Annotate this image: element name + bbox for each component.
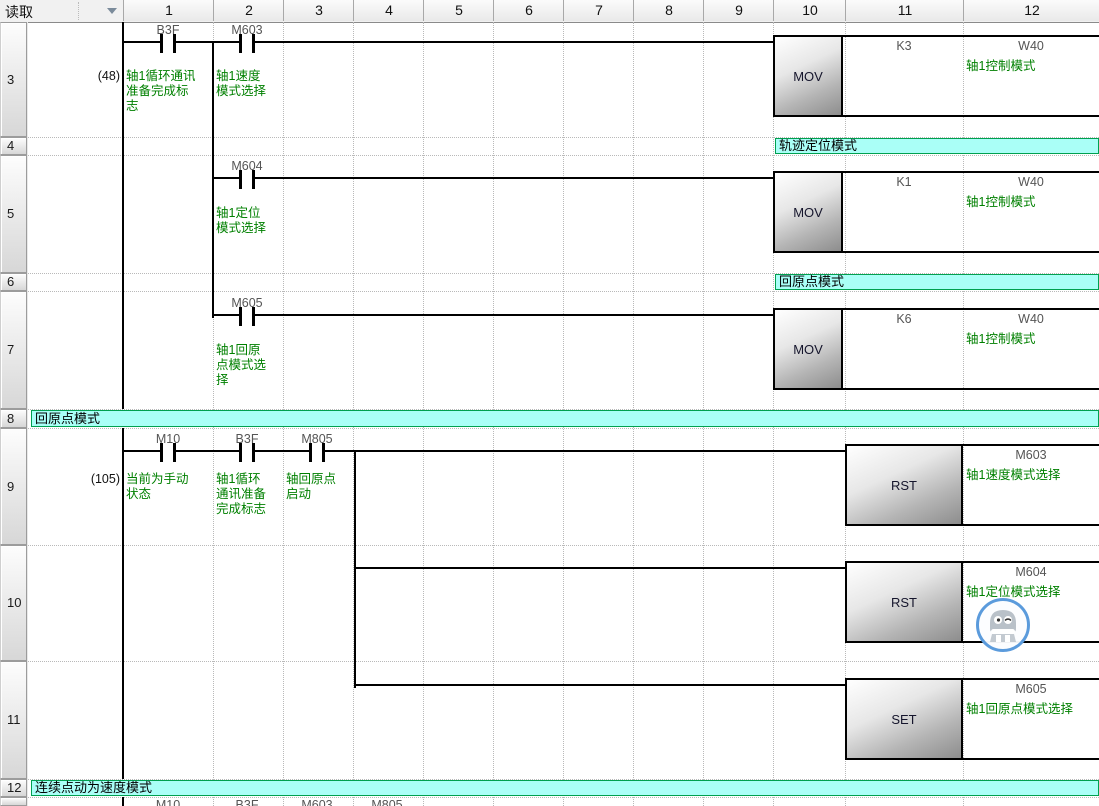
operand-comment: 轴1控制模式 <box>966 55 1035 74</box>
contact-bar <box>239 34 242 53</box>
operand-label: M603 <box>963 448 1099 462</box>
header-divider <box>78 2 79 20</box>
operand-label: W40 <box>963 175 1099 189</box>
instruction-mnemonic: SET <box>891 712 916 727</box>
instruction-box-mov[interactable]: MOV <box>773 171 843 253</box>
instruction-mnemonic: MOV <box>793 69 823 84</box>
contact-bar <box>252 170 255 189</box>
instruction-mnemonic: RST <box>891 478 917 493</box>
instruction-mnemonic: RST <box>891 595 917 610</box>
operand-comment: 轴1回原点模式选择 <box>966 698 1073 717</box>
rung-line <box>212 314 775 316</box>
column-header-4: 4 <box>353 0 424 21</box>
column-header-10: 10 <box>773 0 846 21</box>
contact-bar <box>160 443 163 462</box>
device-comment: 轴1循环 通讯准备 完成标志 <box>216 472 282 517</box>
contact-bar <box>322 443 325 462</box>
contact-bar <box>252 34 255 53</box>
statement-bar[interactable]: 轨迹定位模式 <box>775 138 1099 154</box>
instruction-rail <box>961 561 1099 563</box>
device-label: B3F <box>133 23 203 37</box>
instruction-box-mov[interactable]: MOV <box>773 308 843 390</box>
operand-label: W40 <box>963 312 1099 326</box>
operand-label: K6 <box>845 312 963 326</box>
contact-gap <box>163 40 173 46</box>
contact-bar <box>173 34 176 53</box>
contact-gap <box>242 449 252 455</box>
statement-text: 连续点动为速度模式 <box>35 781 152 795</box>
contact-bar <box>160 34 163 53</box>
grid-line <box>28 155 1099 156</box>
device-label: M605 <box>212 296 282 310</box>
rung-line <box>354 684 847 686</box>
contact-bar <box>239 307 242 326</box>
device-label: M603 <box>212 23 282 37</box>
device-label: M805 <box>282 432 352 446</box>
operand-comment: 轴1速度模式选择 <box>966 464 1060 483</box>
instruction-rail <box>841 388 1099 390</box>
device-label: B3F <box>212 798 282 806</box>
statement-bar[interactable]: 回原点模式 <box>775 274 1099 290</box>
contact-bar <box>239 170 242 189</box>
operand-comment: 轴1定位模式选择 <box>966 581 1060 600</box>
row-header-4[interactable]: 4 <box>0 137 27 155</box>
column-header-2: 2 <box>213 0 284 21</box>
contact-m604[interactable]: M604 <box>212 159 282 193</box>
column-header-5: 5 <box>423 0 494 21</box>
column-header-8: 8 <box>633 0 704 21</box>
contact-m605[interactable]: M605 <box>212 296 282 330</box>
contact-bar <box>173 443 176 462</box>
grid-line <box>28 661 1099 662</box>
contact-gap <box>242 176 252 182</box>
row-header-6[interactable]: 6 <box>0 273 27 291</box>
row-header-10[interactable]: 10 <box>0 545 27 661</box>
column-header-11: 11 <box>845 0 964 21</box>
instruction-rail <box>841 35 1099 37</box>
robot-face-icon <box>983 605 1023 645</box>
column-header-6: 6 <box>493 0 564 21</box>
contact-m603[interactable]: M603 <box>212 23 282 57</box>
statement-text: 轨迹定位模式 <box>779 139 857 153</box>
device-label: M603 <box>282 798 352 806</box>
device-label: M805 <box>352 798 422 806</box>
device-label: B3F <box>212 432 282 446</box>
row-number: 5 <box>7 206 14 221</box>
row-number: 8 <box>7 411 14 426</box>
row-number: 6 <box>7 274 14 289</box>
operand-label: K3 <box>845 39 963 53</box>
operand-comment: 轴1控制模式 <box>966 191 1035 210</box>
instruction-box-set[interactable]: SET <box>845 678 963 760</box>
row-number: 4 <box>7 138 14 153</box>
device-comment: 当前为手动 状态 <box>126 472 212 502</box>
row-header-11[interactable]: 11 <box>0 661 27 779</box>
rung-line <box>354 567 847 569</box>
contact-m10[interactable]: M10 <box>133 432 203 466</box>
instruction-rail <box>961 444 1099 446</box>
row-header-12[interactable]: 12 <box>0 779 27 797</box>
contact-b3f[interactable]: B3F <box>212 432 282 466</box>
row-number: 11 <box>7 712 21 727</box>
column-header-7: 7 <box>563 0 634 21</box>
instruction-mnemonic: MOV <box>793 205 823 220</box>
instruction-box-mov[interactable]: MOV <box>773 35 843 117</box>
grid-line <box>28 428 1099 429</box>
operand-label: M604 <box>963 565 1099 579</box>
device-label: M10 <box>133 432 203 446</box>
device-label: M10 <box>133 798 203 806</box>
device-comment: 轴回原点 启动 <box>286 472 352 502</box>
device-comment: 轴1回原 点模式选 择 <box>216 343 282 388</box>
contact-gap <box>312 449 322 455</box>
column-header-3: 3 <box>283 0 354 21</box>
step-number: (105) <box>58 472 120 486</box>
grid-line <box>28 545 1099 546</box>
row-header-7[interactable]: 7 <box>0 291 27 409</box>
device-comment: 轴1速度 模式选择 <box>216 69 282 99</box>
grid-line <box>28 291 1099 292</box>
read-mode-label: 读取 <box>5 2 33 22</box>
contact-bar <box>252 443 255 462</box>
instruction-rail <box>841 115 1099 117</box>
statement-text: 回原点模式 <box>35 412 100 426</box>
row-number: 3 <box>7 72 14 87</box>
contact-bar <box>239 443 242 462</box>
statement-bar[interactable]: 连续点动为速度模式 <box>31 780 1099 796</box>
rung-line <box>212 177 775 179</box>
instruction-rail <box>961 524 1099 526</box>
contact-b3f[interactable]: B3F <box>133 23 203 57</box>
contact-gap <box>242 313 252 319</box>
column-header-12: 12 <box>963 0 1099 21</box>
read-mode-combo[interactable]: 读取 <box>0 0 123 21</box>
statement-text: 回原点模式 <box>779 275 844 289</box>
instruction-rail <box>961 678 1099 680</box>
operand-label: K1 <box>845 175 963 189</box>
chevron-down-icon[interactable] <box>107 8 117 14</box>
left-rail <box>122 22 124 409</box>
instruction-rail <box>841 308 1099 310</box>
column-header-9: 9 <box>703 0 774 21</box>
row-header-5[interactable]: 5 <box>0 155 27 273</box>
device-label: M604 <box>212 159 282 173</box>
column-header-1: 1 <box>123 0 214 21</box>
contact-gap <box>163 449 173 455</box>
contact-m805[interactable]: M805 <box>282 432 352 466</box>
row-header-9[interactable]: 9 <box>0 428 27 545</box>
instruction-rail <box>841 171 1099 173</box>
row-header-3[interactable]: 3 <box>0 22 27 137</box>
row-number: 9 <box>7 479 14 494</box>
contact-gap <box>242 40 252 46</box>
device-comment: 轴1循环通讯 准备完成标 志 <box>126 69 212 114</box>
contact-bar <box>309 443 312 462</box>
branch-line <box>354 450 356 688</box>
operand-label: W40 <box>963 39 1099 53</box>
row-header-partial <box>0 797 27 806</box>
instruction-mnemonic: MOV <box>793 342 823 357</box>
ladder-editor: 读取 1 2 3 4 5 6 7 8 9 10 11 12 3 4 5 6 7 … <box>0 0 1099 806</box>
row-number: 12 <box>7 780 21 795</box>
instruction-box-rst[interactable]: RST <box>845 444 963 526</box>
operand-label: M605 <box>963 682 1099 696</box>
left-rail <box>122 428 124 779</box>
statement-bar[interactable]: 回原点模式 <box>31 410 1099 427</box>
step-number: (48) <box>58 69 120 83</box>
contact-bar <box>252 307 255 326</box>
device-comment: 轴1定位 模式选择 <box>216 206 282 236</box>
instruction-box-rst[interactable]: RST <box>845 561 963 643</box>
next-rung-partial: M10 B3F M603 M805 <box>28 797 1099 806</box>
assistant-robot-icon[interactable] <box>976 598 1030 652</box>
operand-comment: 轴1控制模式 <box>966 328 1035 347</box>
row-header-8[interactable]: 8 <box>0 409 27 428</box>
instruction-rail <box>961 758 1099 760</box>
row-number: 7 <box>7 342 14 357</box>
instruction-rail <box>841 251 1099 253</box>
row-number: 10 <box>7 595 21 610</box>
